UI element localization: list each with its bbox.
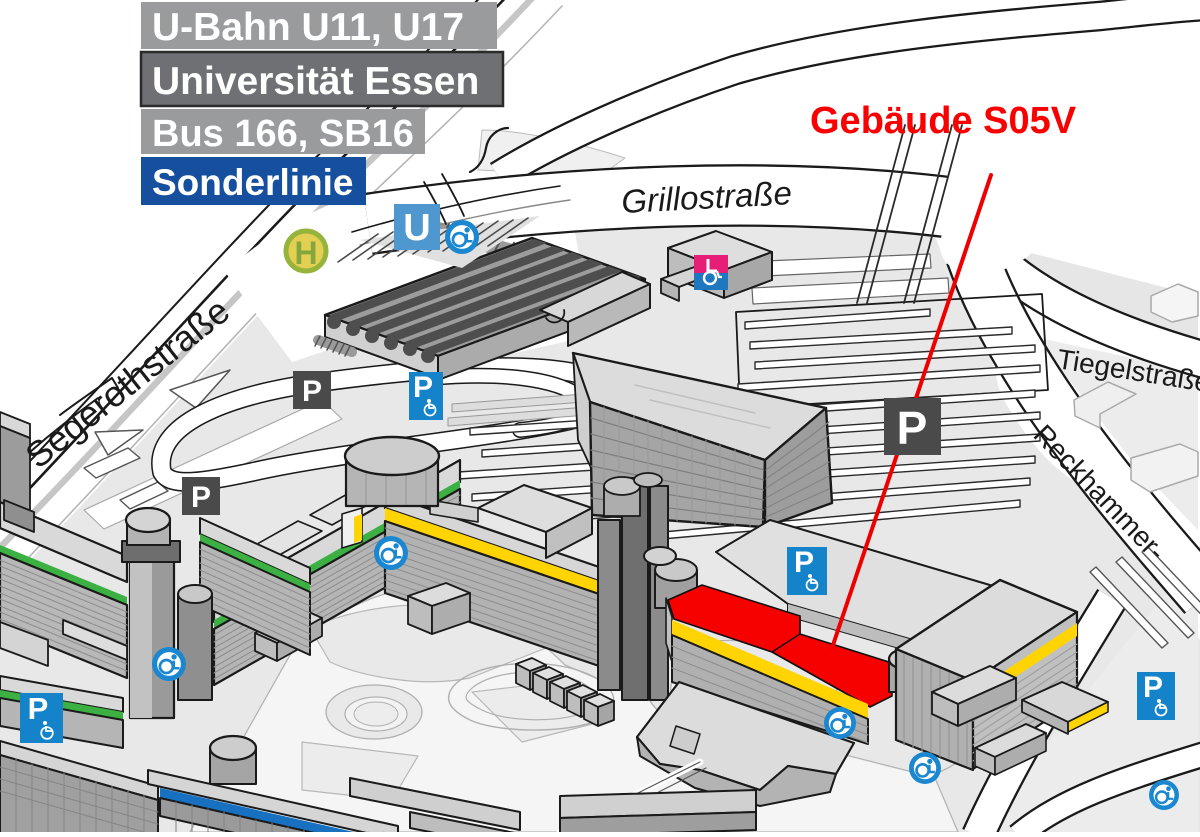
svg-text:Sonderlinie: Sonderlinie (152, 162, 353, 203)
svg-text:P: P (191, 481, 211, 514)
svg-text:Gebäude S05V: Gebäude S05V (810, 100, 1077, 142)
svg-text:Bus 166, SB16: Bus 166, SB16 (152, 113, 414, 155)
svg-text:P: P (302, 375, 322, 408)
svg-text:U: U (403, 207, 430, 249)
svg-text:P: P (794, 546, 814, 579)
svg-text:Universität Essen: Universität Essen (152, 60, 479, 103)
svg-text:P: P (897, 402, 928, 454)
svg-text:H: H (294, 235, 317, 271)
svg-text:U-Bahn U11, U17: U-Bahn U11, U17 (152, 6, 464, 49)
svg-text:P: P (413, 371, 433, 404)
svg-text:P: P (1143, 671, 1163, 704)
svg-text:P: P (28, 691, 49, 726)
